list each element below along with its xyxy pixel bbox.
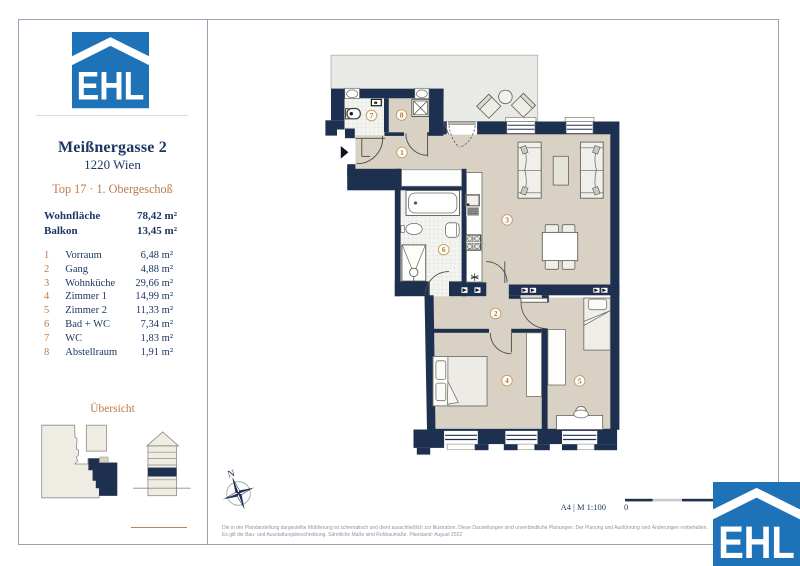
svg-text:6: 6: [442, 245, 446, 254]
svg-text:N: N: [227, 468, 237, 480]
svg-text:EHL: EHL: [718, 517, 795, 566]
svg-text:5: 5: [578, 376, 582, 385]
svg-text:8: 8: [400, 111, 404, 120]
svg-text:7: 7: [370, 111, 374, 120]
svg-text:1: 1: [400, 148, 404, 157]
svg-text:EHL: EHL: [77, 64, 145, 108]
svg-text:4: 4: [505, 376, 509, 385]
svg-text:2: 2: [494, 309, 498, 318]
svg-text:3: 3: [505, 215, 509, 224]
